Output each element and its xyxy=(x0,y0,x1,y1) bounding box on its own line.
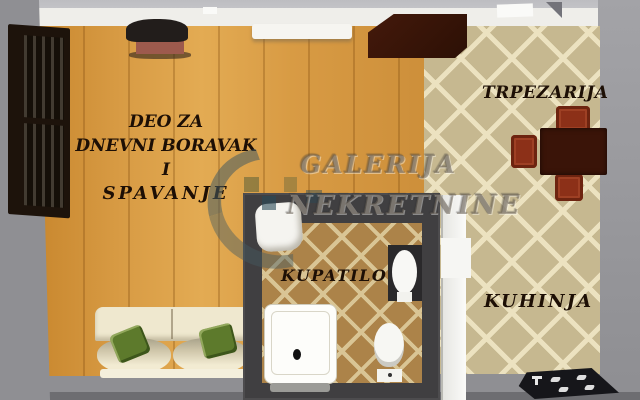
ceiling-light xyxy=(497,3,533,17)
sink-pedestal xyxy=(397,292,412,302)
sofa-base xyxy=(100,369,246,378)
shower-tray xyxy=(264,304,337,384)
tv xyxy=(126,19,188,42)
flush-button-icon xyxy=(388,373,392,377)
dining-chair xyxy=(511,135,537,168)
stove-burner xyxy=(576,375,587,380)
wall-shelf xyxy=(252,24,352,39)
shower-inner-edge xyxy=(271,311,330,375)
washing-machine xyxy=(254,201,303,252)
bathroom xyxy=(243,193,440,400)
floorplan-scene: DEO ZA DNEVNI BORAVAK I SPAVANJE TRPEZAR… xyxy=(0,0,640,400)
stove-control xyxy=(535,376,538,385)
kitchen-label: KUHINJA xyxy=(484,291,593,312)
wardrobe-door-panel xyxy=(24,35,64,120)
living-label-line: DEO ZA xyxy=(60,110,272,134)
sink xyxy=(392,250,417,294)
drain-icon xyxy=(293,349,301,360)
bathroom-label: KUPATILO xyxy=(281,266,387,285)
dining-room-label: TRPEZARIJA xyxy=(482,83,608,103)
living-label-line: DNEVNI BORAVAK xyxy=(60,134,272,158)
corner-wedge xyxy=(546,2,562,18)
sofa xyxy=(95,307,251,378)
ceiling-light xyxy=(203,7,217,14)
stove-burner xyxy=(584,385,595,390)
door xyxy=(441,195,466,400)
dining-table xyxy=(540,128,607,175)
right-wall xyxy=(598,0,640,400)
stove-burner xyxy=(558,387,569,392)
sofa-seam xyxy=(171,309,173,339)
dining-chair xyxy=(555,174,583,201)
living-label-line: I xyxy=(60,158,272,182)
toilet-tank xyxy=(377,369,402,382)
stove-burner xyxy=(550,377,561,382)
door-leaf xyxy=(441,238,471,278)
toilet xyxy=(374,323,404,367)
living-label-line: SPAVANJE xyxy=(60,182,272,206)
bath-mat xyxy=(270,383,330,392)
wardrobe-door-panel xyxy=(24,123,64,208)
living-area-label: DEO ZA DNEVNI BORAVAK I SPAVANJE xyxy=(60,110,272,206)
